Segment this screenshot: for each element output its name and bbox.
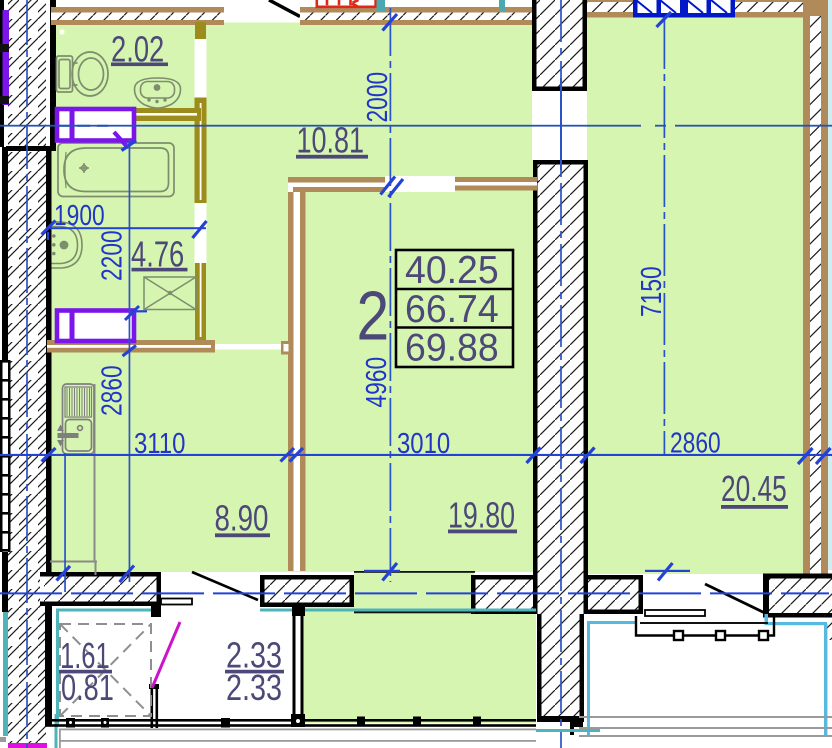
svg-text:2.33: 2.33 [226,667,282,708]
svg-text:4960: 4960 [362,357,393,408]
svg-text:10.81: 10.81 [297,119,365,160]
svg-text:69.88: 69.88 [405,326,499,370]
svg-text:3010: 3010 [397,427,450,459]
svg-text:8.90: 8.90 [215,498,269,538]
svg-text:2000: 2000 [363,72,394,123]
svg-text:19.80: 19.80 [448,494,515,535]
svg-text:2200: 2200 [97,230,128,281]
svg-text:2860: 2860 [670,428,721,459]
svg-text:7150: 7150 [637,266,668,317]
svg-text:3110: 3110 [134,427,185,459]
svg-text:2860: 2860 [97,365,128,416]
svg-text:66.74: 66.74 [405,287,499,331]
svg-text:0.81: 0.81 [61,667,114,708]
svg-text:2: 2 [357,276,390,355]
svg-text:40.25: 40.25 [405,248,499,292]
svg-text:1900: 1900 [54,201,105,232]
svg-text:20.45: 20.45 [721,468,787,509]
